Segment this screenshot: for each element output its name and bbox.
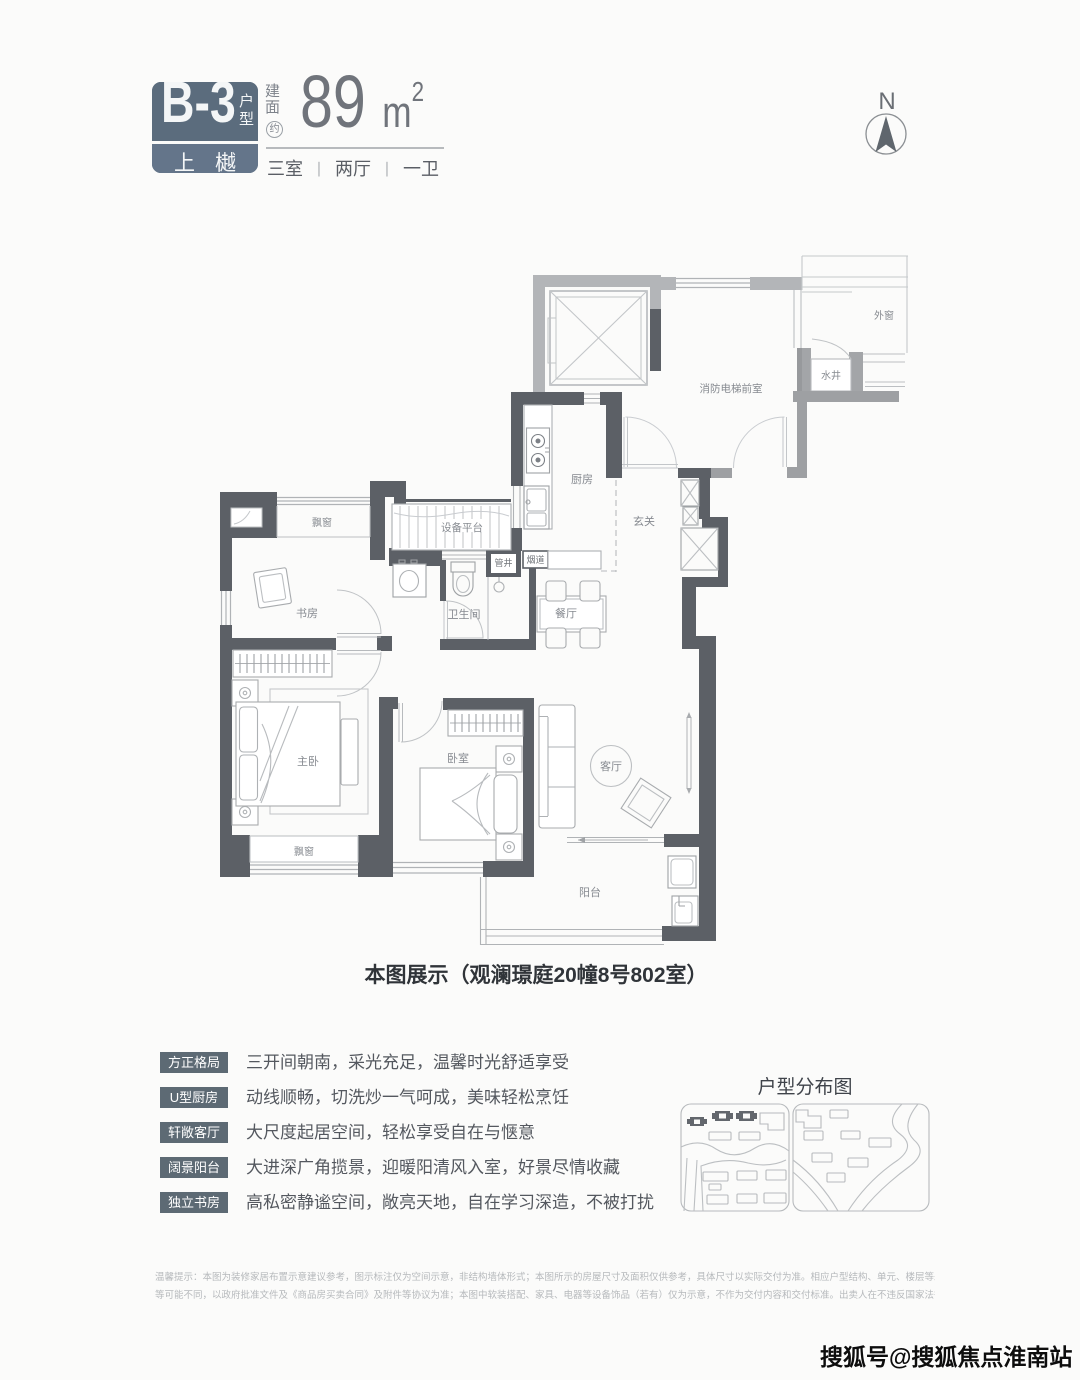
svg-text:飘窗: 飘窗 — [294, 845, 314, 858]
svg-text:客厅: 客厅 — [600, 759, 622, 773]
svg-text:设备平台: 设备平台 — [441, 521, 483, 534]
svg-text:飘窗: 飘窗 — [312, 516, 332, 529]
svg-text:主卧: 主卧 — [297, 755, 319, 768]
svg-text:外窗: 外窗 — [874, 309, 894, 322]
svg-text:卫生间: 卫生间 — [448, 607, 481, 621]
svg-text:厨房: 厨房 — [571, 473, 593, 486]
svg-text:阳台: 阳台 — [579, 885, 601, 899]
svg-text:管井: 管井 — [494, 557, 512, 568]
svg-text:书房: 书房 — [296, 607, 318, 620]
svg-text:消防电梯前室: 消防电梯前室 — [700, 382, 763, 395]
svg-text:玄关: 玄关 — [633, 514, 655, 528]
svg-text:卧室: 卧室 — [447, 751, 469, 765]
svg-text:烟道: 烟道 — [526, 554, 544, 565]
svg-text:水井: 水井 — [821, 369, 841, 382]
svg-text:餐厅: 餐厅 — [555, 606, 577, 620]
